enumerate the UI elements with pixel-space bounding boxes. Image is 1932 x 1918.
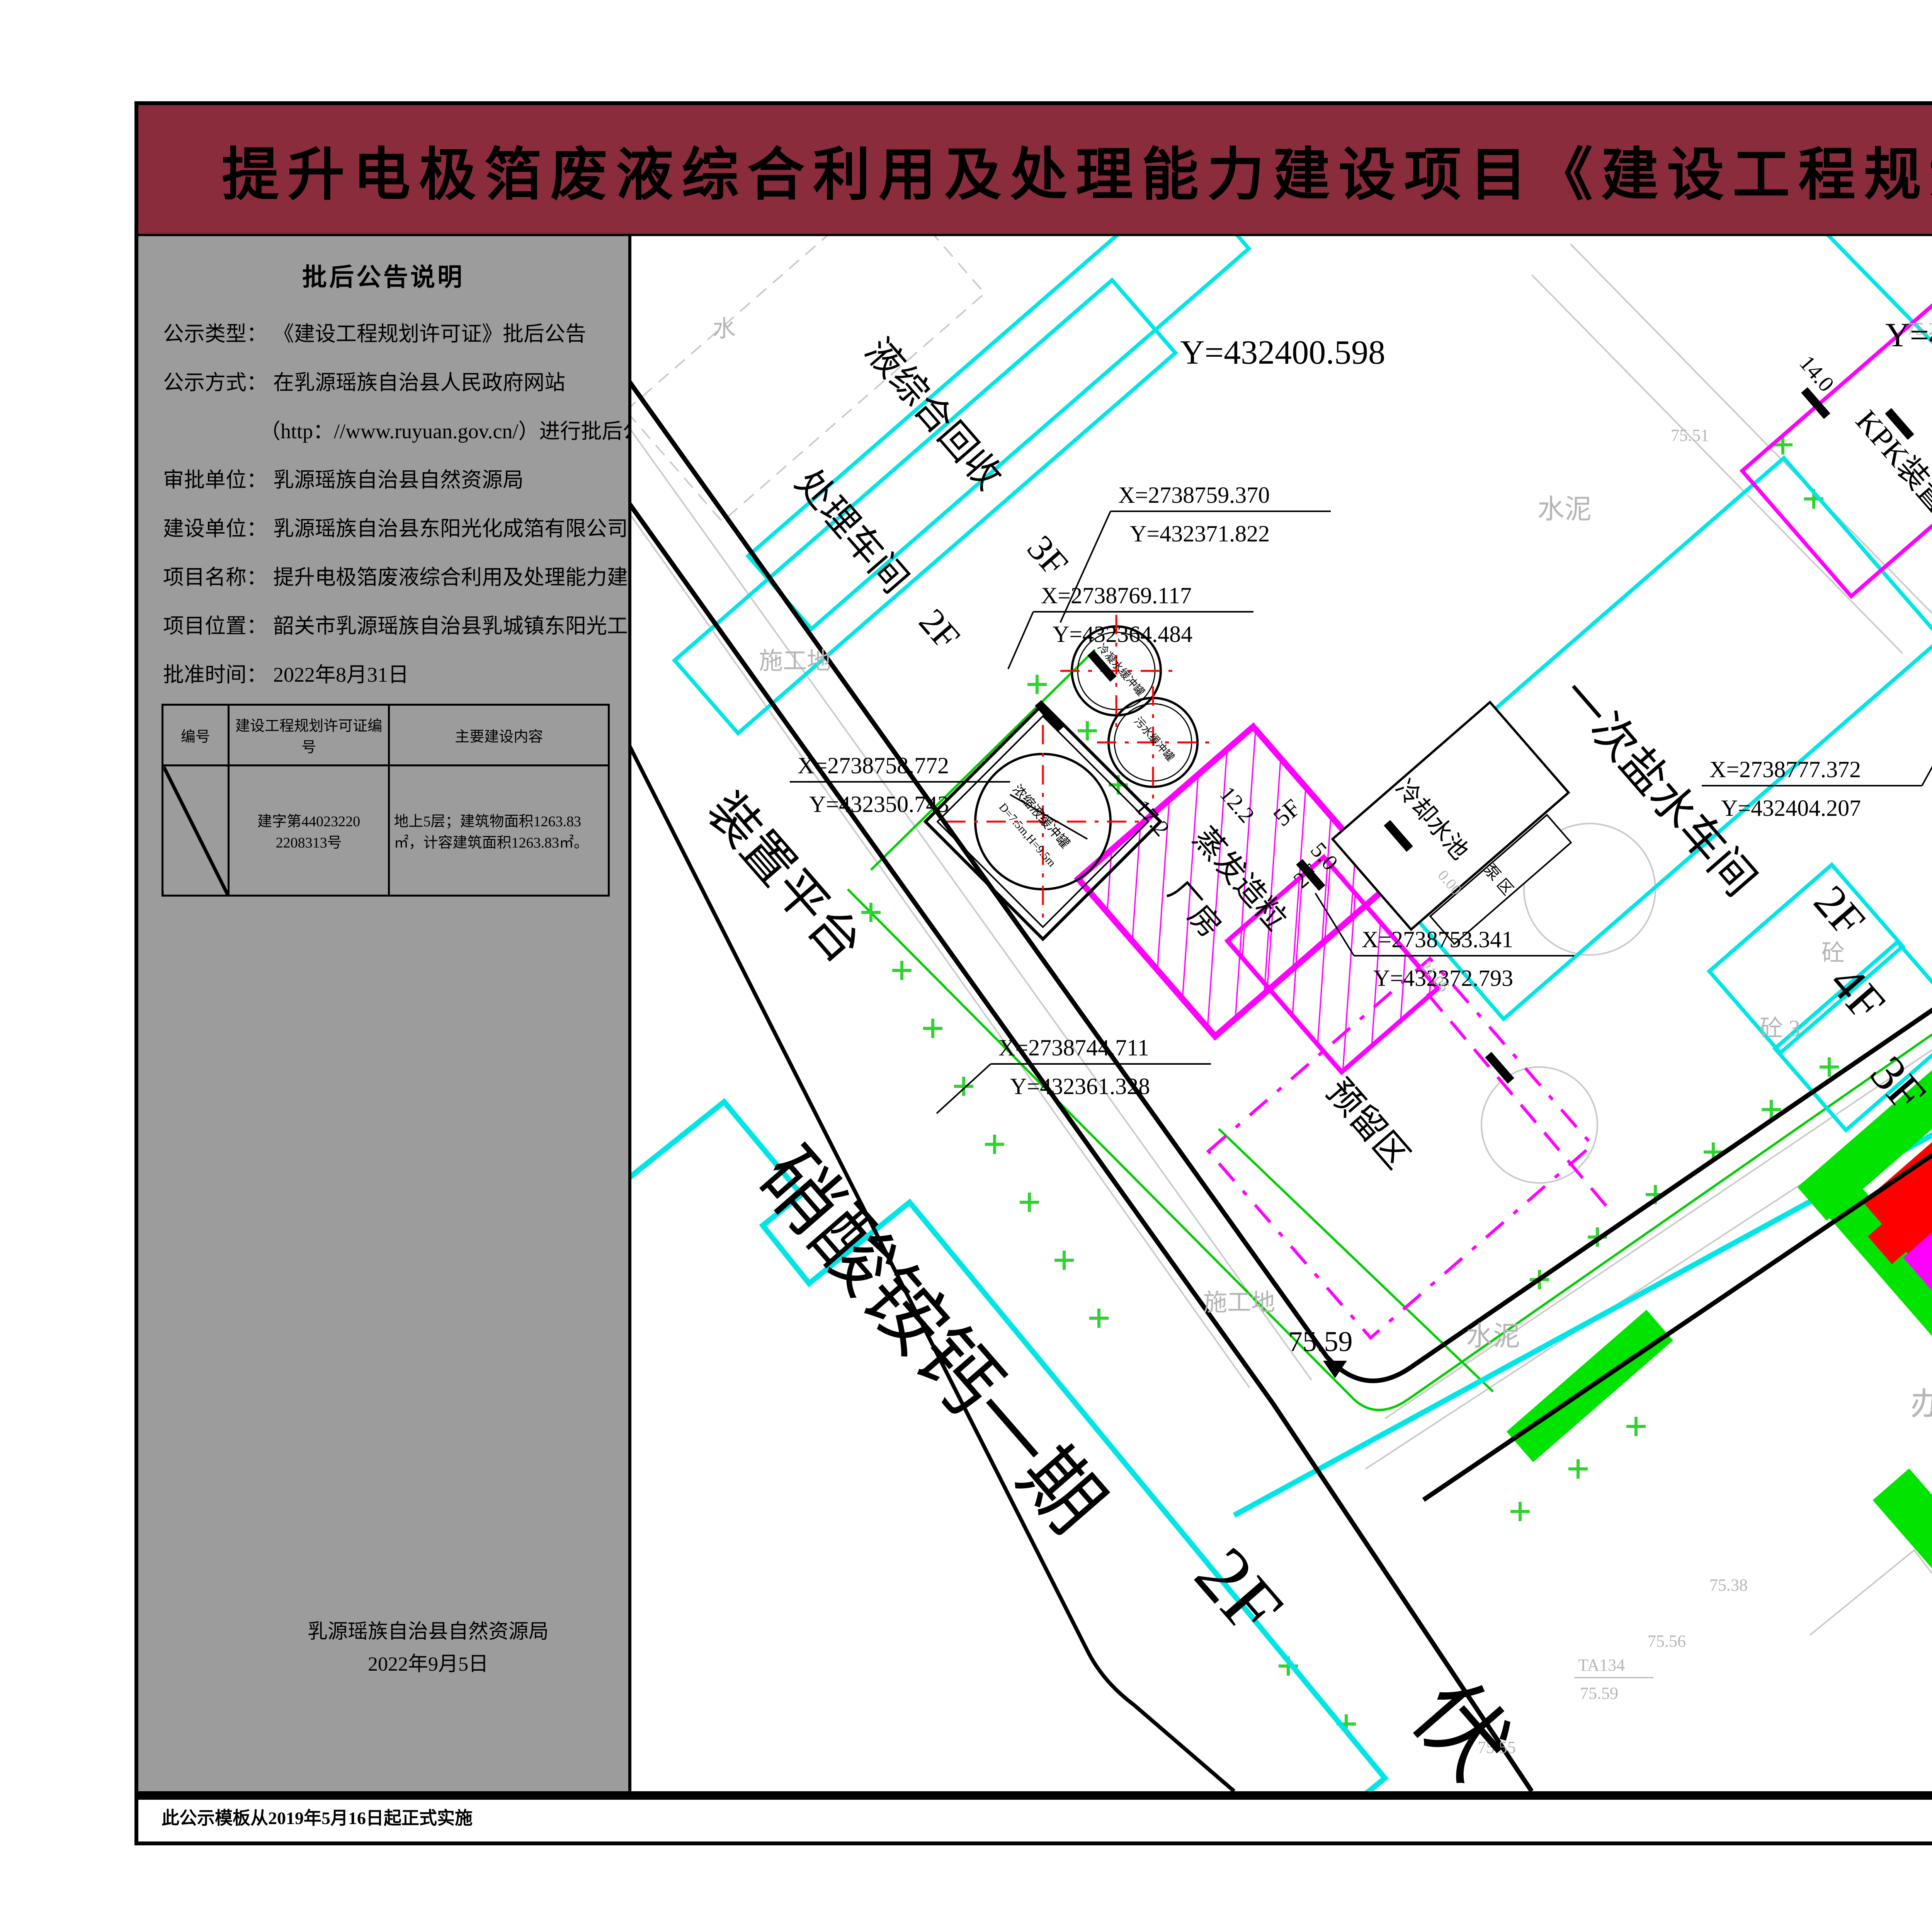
field-value: 韶关市乳源瑶族自治县乳城镇东阳光工业园	[273, 614, 670, 638]
svg-text:施工地: 施工地	[1203, 1290, 1275, 1316]
svg-text:75.56: 75.56	[1648, 1632, 1686, 1651]
issuer-name: 乳源瑶族自治县自然资源局	[254, 1616, 602, 1648]
svg-text:污水缓冲罐: 污水缓冲罐	[1132, 715, 1177, 764]
svg-text:水泥: 水泥	[1466, 1322, 1520, 1351]
field-row: 项目名称：提升电极箔废液综合利用及处理能力建设项目	[163, 553, 607, 602]
svg-text:水: 水	[713, 316, 736, 342]
sheet-frame: 提升电极箔废液综合利用及处理能力建设项目《建设工程规划许可证》批后公告 批后公告…	[134, 101, 1932, 1845]
svg-text:伏: 伏	[1393, 1663, 1529, 1791]
svg-text:办: 办	[1910, 1387, 1932, 1422]
svg-text:硝酸铵钙一期: 硝酸铵钙一期	[742, 1133, 1120, 1549]
svg-text:Y=432404.207: Y=432404.207	[1721, 795, 1861, 821]
field-row: （http：//www.ruyuan.gov.cn/）进行批后公告	[163, 407, 607, 456]
svg-text:X=2738758.772: X=2738758.772	[798, 753, 949, 778]
svg-text:X=2738769.117: X=2738769.117	[1041, 583, 1192, 608]
cell-number	[163, 766, 229, 896]
field-label: 建设单位：	[163, 504, 273, 553]
svg-text:Y=432364.484: Y=432364.484	[1053, 621, 1192, 647]
svg-text:KPK装置区: KPK装置区	[1849, 404, 1932, 543]
issuer-block: 乳源瑶族自治县自然资源局 2022年9月5日	[254, 1616, 602, 1681]
field-row: 审批单位：乳源瑶族自治县自然资源局	[163, 456, 607, 504]
field-value: 《建设工程规划许可证》批后公告	[273, 322, 586, 345]
permit-table: 编号 建设工程规划许可证编号 主要建设内容 建字第44023220 220831…	[162, 704, 610, 897]
field-label: 项目位置：	[163, 602, 273, 650]
field-label: 批准时间：	[163, 650, 273, 699]
svg-text:75.38: 75.38	[1709, 1576, 1748, 1595]
field-row: 公示方式：在乳源瑶族自治县人民政府网站	[163, 358, 607, 407]
svg-text:2F: 2F	[1804, 876, 1875, 946]
issue-date: 2022年9月5日	[254, 1648, 602, 1681]
svg-text:Y=432371.822: Y=432371.822	[1130, 521, 1270, 546]
th-permit: 建设工程规划许可证编号	[228, 705, 389, 766]
table-row: 建字第44023220 2208313号 地上5层；建筑物面积1263.83㎡，…	[163, 766, 609, 896]
site-plan: X=2738759.370 Y=432371.822 X=2738769.117…	[631, 236, 1932, 1791]
svg-text:75.59: 75.59	[1288, 1326, 1353, 1358]
footer-note: 此公示模板从2019年5月16日起正式实施	[162, 1800, 473, 1837]
field-label: 公示方式：	[163, 358, 273, 407]
svg-text:14.0: 14.0	[1794, 351, 1839, 397]
svg-text:Y=432350.743: Y=432350.743	[809, 791, 949, 817]
field-label: 项目名称：	[163, 553, 273, 602]
coord-callout: X=2738769.117 Y=432364.484	[1008, 583, 1253, 669]
sidebar-heading: 批后公告说明	[138, 257, 628, 293]
field-value: 提升电极箔废液综合利用及处理能力建设项目	[273, 566, 690, 589]
site-plan-svg: X=2738759.370 Y=432371.822 X=2738769.117…	[631, 236, 1932, 1791]
coord-callout: X=2738777.372 Y=432404.207	[1702, 628, 1932, 821]
svg-text:75.59: 75.59	[1580, 1684, 1618, 1703]
field-value: 乳源瑶族自治县自然资源局	[273, 468, 524, 492]
footer: 此公示模板从2019年5月16日起正式实施 监制单位：乳源瑶族自治县自然资源局	[138, 1800, 1932, 1837]
svg-text:施工地: 施工地	[759, 648, 831, 674]
field-row: 项目位置：韶关市乳源瑶族自治县乳城镇东阳光工业园	[163, 602, 607, 650]
svg-text:Y=432361.328: Y=432361.328	[1010, 1074, 1150, 1099]
field-label: 审批单位：	[163, 456, 273, 504]
title-band: 提升电极箔废液综合利用及处理能力建设项目《建设工程规划许可证》批后公告	[138, 105, 1932, 236]
grid-label-y: Y=432400.598	[1180, 334, 1385, 371]
svg-text:处理车间: 处理车间	[787, 462, 916, 601]
field-label: 公示类型：	[163, 310, 273, 358]
cell-content: 地上5层；建筑物面积1263.83㎡，计容建筑面积1263.83㎡。	[389, 766, 609, 896]
svg-text:3F: 3F	[1019, 528, 1076, 584]
sidebar-notes: 批后公告说明 公示类型：《建设工程规划许可证》批后公告 公示方式：在乳源瑶族自治…	[138, 236, 631, 1791]
ta134-elevation: TA134 75.59	[1574, 1656, 1653, 1703]
svg-text:X=2738759.370: X=2738759.370	[1118, 482, 1270, 508]
svg-text:一次盐水车间: 一次盐水车间	[1551, 670, 1765, 905]
svg-text:预留区: 预留区	[1319, 1072, 1417, 1176]
building-labels: 液综合回收 3F 处理车间 2F 一次盐水车间 2F 4F 3F KPK装置区 …	[696, 330, 1932, 1791]
sidebar-fields: 公示类型：《建设工程规划许可证》批后公告 公示方式：在乳源瑶族自治县人民政府网站…	[163, 310, 607, 699]
svg-text:X=2738753.341: X=2738753.341	[1362, 927, 1513, 952]
cell-permit: 建字第44023220 2208313号	[228, 766, 389, 896]
page-title: 提升电极箔废液综合利用及处理能力建设项目《建设工程规划许可证》批后公告	[222, 128, 1932, 211]
field-value: 2022年8月31日	[273, 663, 409, 686]
field-row: 建设单位：乳源瑶族自治县东阳光化成箔有限公司	[163, 504, 607, 553]
existing-buildings	[631, 236, 1932, 1791]
svg-text:液综合回收: 液综合回收	[857, 330, 1010, 497]
field-value: 乳源瑶族自治县东阳光化成箔有限公司	[273, 517, 628, 540]
field-value: 在乳源瑶族自治县人民政府网站	[273, 371, 565, 394]
svg-text:2F: 2F	[911, 601, 968, 658]
field-row: 公示类型：《建设工程规划许可证》批后公告	[163, 310, 607, 358]
svg-text:X=2738777.372: X=2738777.372	[1709, 757, 1861, 782]
field-value-url: （http：//www.ruyuan.gov.cn/）进行批后公告	[163, 420, 664, 443]
gray-texture-lines	[631, 236, 1932, 1791]
svg-text:4F: 4F	[1819, 955, 1896, 1031]
grid-label-y-partial: Y=4	[1885, 317, 1932, 354]
th-content: 主要建设内容	[389, 705, 609, 766]
svg-text:75.51: 75.51	[1671, 426, 1709, 445]
svg-text:X=2738744.711: X=2738744.711	[998, 1035, 1149, 1060]
svg-text:水泥: 水泥	[1537, 495, 1592, 524]
svg-text:砼 3: 砼 3	[1760, 1016, 1800, 1041]
coord-callout: X=2738744.711 Y=432361.328	[937, 1035, 1211, 1113]
svg-text:砼: 砼	[1821, 940, 1845, 966]
svg-text:TA134: TA134	[1578, 1656, 1625, 1675]
field-row: 批准时间：2022年8月31日	[163, 650, 607, 699]
footer-divider	[138, 1791, 1932, 1800]
th-number: 编号	[163, 705, 229, 766]
